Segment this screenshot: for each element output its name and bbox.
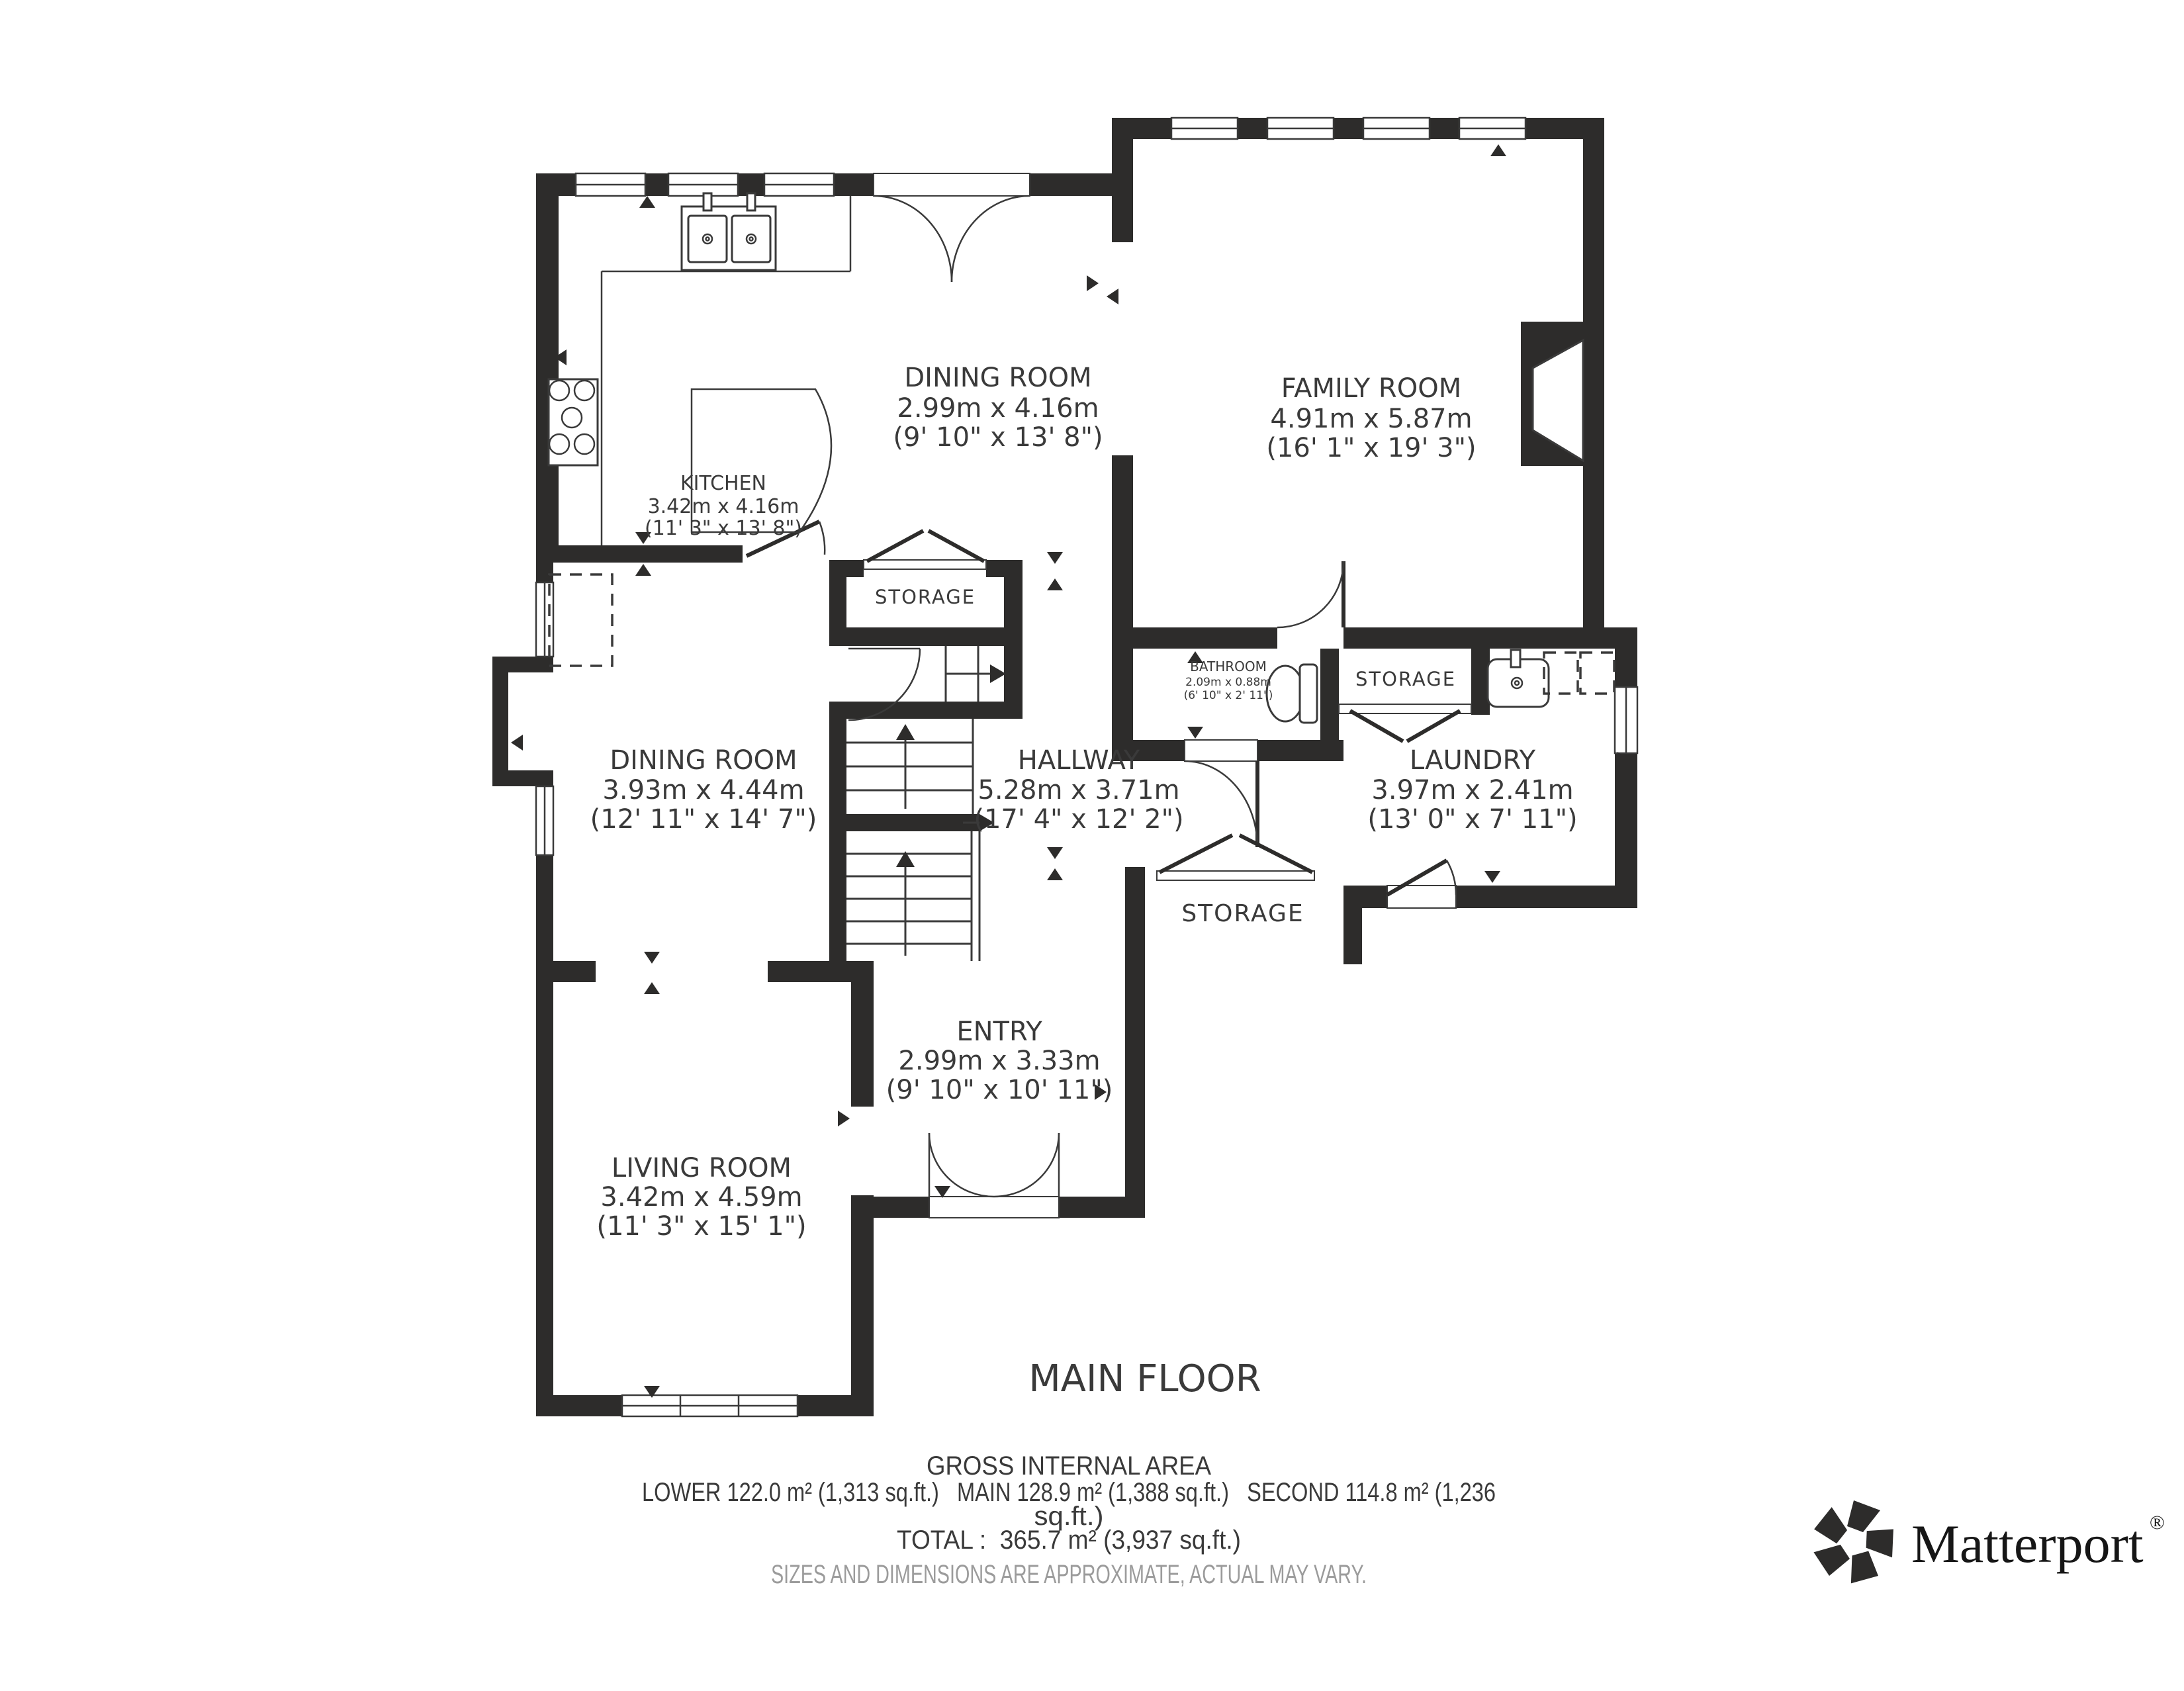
closet-label-top: STORAGE (875, 586, 976, 608)
matterport-pinwheel-icon (1808, 1500, 1902, 1591)
room-dim-entry-imperial: (9' 10" x 10' 11") (886, 1075, 1113, 1105)
kitchen-sink (682, 193, 776, 270)
toilet (1267, 664, 1317, 723)
room-label-hallway: HALLWAY (1018, 745, 1140, 776)
footer: GROSS INTERNAL AREA LOWER 122.0 m² (1,31… (642, 1451, 1496, 1589)
closet-label-right: STORAGE (1355, 668, 1456, 690)
floor-plan: DINING ROOM 2.99m x 4.16m (9' 10" x 13' … (0, 0, 2184, 1688)
room-dim-dining-top-metric: 2.99m x 4.16m (897, 393, 1099, 424)
room-dim-laundry-metric: 3.97m x 2.41m (1371, 775, 1573, 805)
room-dim-dining-left-metric: 3.93m x 4.44m (602, 775, 804, 805)
room-label-bathroom: BATHROOM (1190, 659, 1267, 674)
room-dim-laundry-imperial: (13' 0" x 7' 11") (1367, 804, 1577, 835)
room-dim-family-imperial: (16' 1" x 19' 3") (1266, 433, 1476, 463)
room-labels: DINING ROOM 2.99m x 4.16m (9' 10" x 13' … (590, 363, 1578, 1242)
room-dim-family-metric: 4.91m x 5.87m (1270, 404, 1472, 434)
room-dim-hallway-metric: 5.28m x 3.71m (978, 775, 1179, 805)
double-door-arc (952, 196, 1030, 282)
registered-trademark-icon: ® (2150, 1512, 2165, 1533)
room-label-dining-top: DINING ROOM (904, 363, 1091, 393)
room-dim-living-imperial: (11' 3" x 15' 1") (596, 1211, 806, 1242)
stove (549, 379, 598, 465)
refrigerator (549, 574, 612, 666)
room-label-family: FAMILY ROOM (1281, 373, 1461, 404)
footer-total: TOTAL : 365.7 m² (3,937 sq.ft.) (897, 1526, 1241, 1555)
room-dim-dining-top-imperial: (9' 10" x 13' 8") (893, 422, 1103, 453)
room-dim-dining-left-imperial: (12' 11" x 14' 7") (590, 804, 817, 835)
room-dim-entry-metric: 2.99m x 3.33m (898, 1046, 1100, 1076)
room-dim-kitchen-metric: 3.42m x 4.16m (648, 495, 799, 518)
room-dim-bathroom-imperial: (6' 10" x 2' 11") (1184, 689, 1273, 702)
room-label-entry: ENTRY (956, 1017, 1042, 1047)
closet-label-bottom: STORAGE (1181, 900, 1304, 927)
room-dim-hallway-imperial: (17' 4" x 12' 2") (974, 804, 1183, 835)
room-label-living: LIVING ROOM (612, 1153, 792, 1183)
matterport-logo: Matterport ® (1808, 1500, 2165, 1591)
room-label-laundry: LAUNDRY (1410, 745, 1536, 776)
matterport-wordmark: Matterport (1911, 1514, 2144, 1574)
room-label-dining-left: DINING ROOM (610, 745, 797, 776)
room-dim-living-metric: 3.42m x 4.59m (600, 1182, 802, 1212)
footer-heading: GROSS INTERNAL AREA (927, 1451, 1211, 1481)
room-dim-kitchen-imperial: (11' 3" x 13' 8") (645, 517, 802, 540)
room-label-kitchen: KITCHEN (680, 472, 766, 495)
floor-title: MAIN FLOOR (1028, 1357, 1261, 1400)
footer-disclaimer: SIZES AND DIMENSIONS ARE APPROXIMATE, AC… (771, 1560, 1367, 1589)
room-dim-bathroom-metric: 2.09m x 0.88m (1185, 676, 1271, 689)
double-door-arc (874, 196, 952, 282)
laundry-sink (1488, 650, 1549, 707)
washer-dryer (1544, 653, 1614, 694)
